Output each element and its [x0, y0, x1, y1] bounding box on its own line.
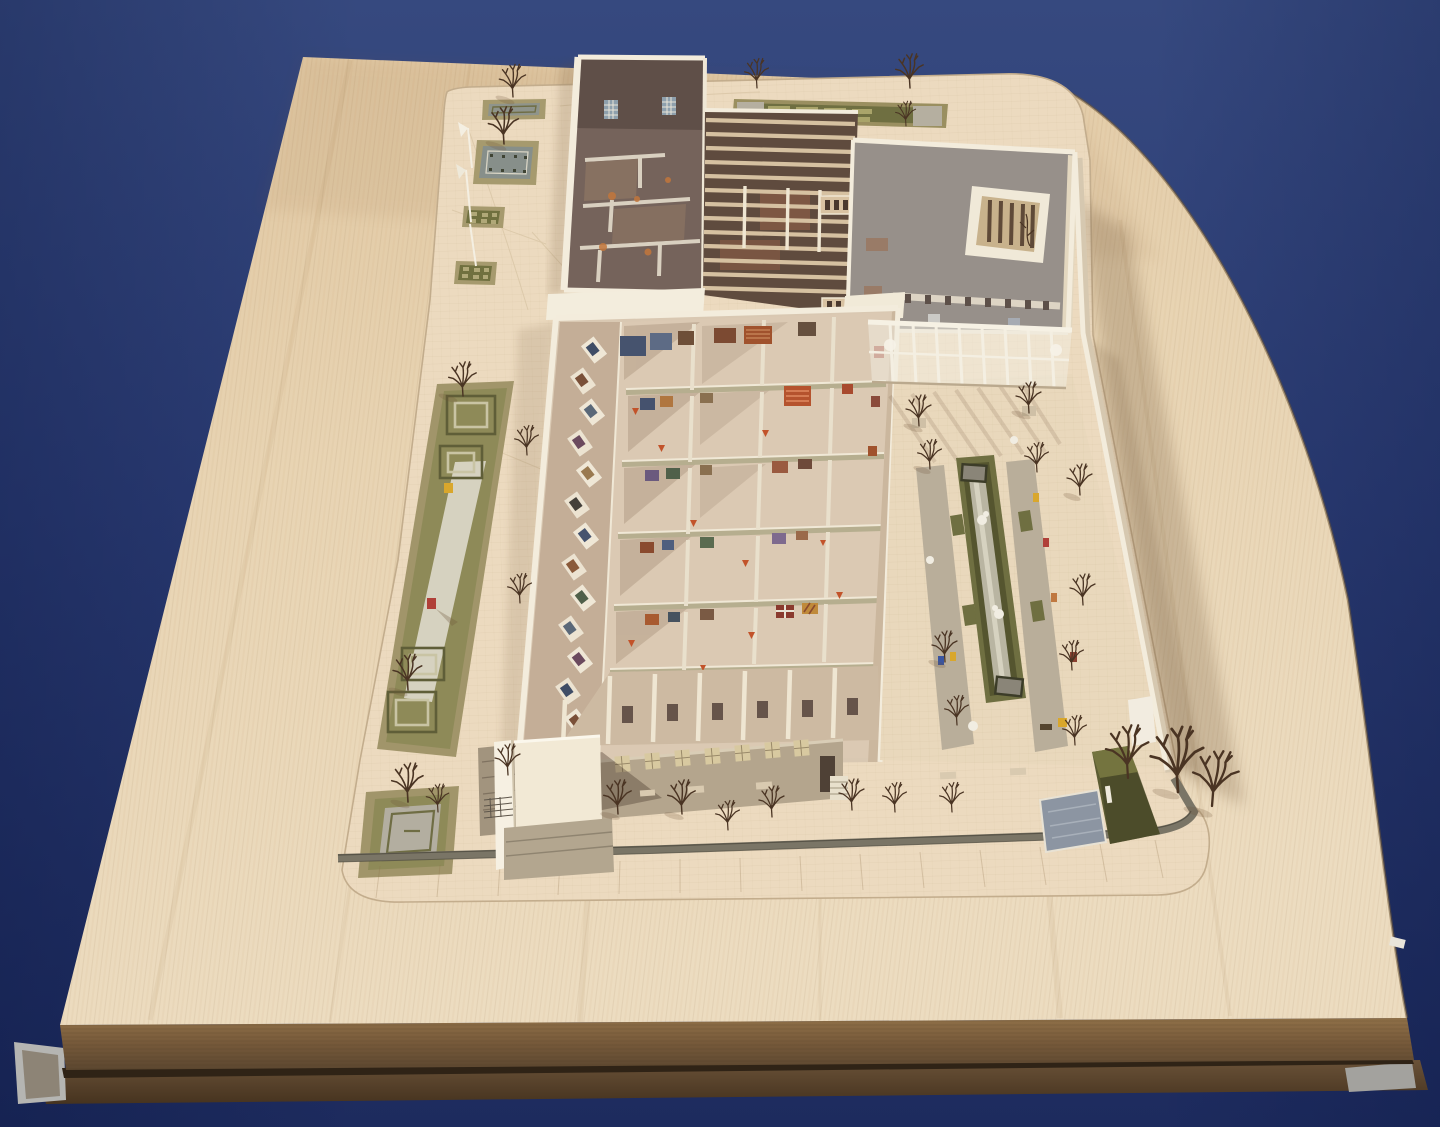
pavilion-base [504, 818, 614, 880]
plinth-metal-notch [22, 1050, 60, 1099]
building-a-upper-hall [573, 57, 705, 130]
building-b-rim-n [705, 110, 858, 112]
model-photo-canvas [0, 0, 1440, 1127]
planter-pad-south [995, 677, 1023, 697]
white-panel [1128, 696, 1156, 746]
gallery-building [518, 308, 898, 766]
entrance-pavilion [478, 736, 614, 880]
parterre-3 [462, 206, 505, 228]
parterre-2 [473, 140, 539, 185]
planter-pad-north [961, 464, 986, 482]
pergola-white-object-2 [1050, 344, 1062, 356]
building-a-northwest-block [564, 57, 705, 293]
skylight-atrium [965, 186, 1050, 263]
pavilion-roof-panel [514, 736, 602, 828]
reflecting-pool [1040, 790, 1106, 852]
south-portico [560, 666, 880, 746]
building-a-rim-n [578, 57, 705, 58]
courtyard-pergola [868, 322, 1072, 388]
pergola-white-object-1 [884, 339, 896, 351]
photo-architectural-model [0, 0, 1440, 1127]
sculpture-red [427, 598, 436, 609]
sculpture-yellow [444, 483, 453, 493]
building-b-ribbed-wing [703, 110, 858, 315]
hedge-strip-pad-right [913, 106, 942, 126]
